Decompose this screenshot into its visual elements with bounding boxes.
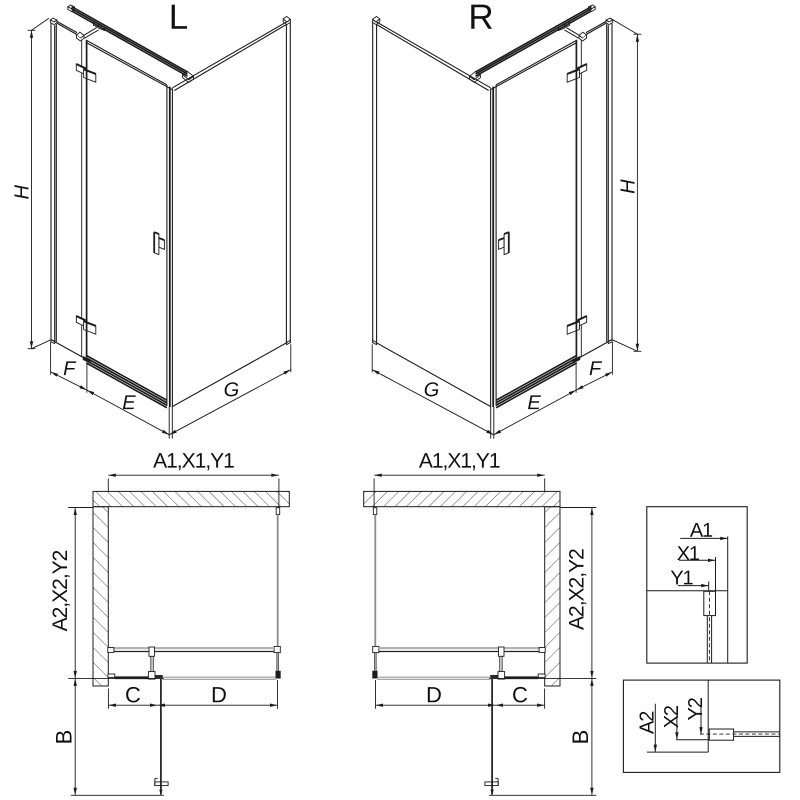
svg-text:F: F: [63, 358, 77, 380]
svg-text:H: H: [11, 185, 33, 200]
svg-text:A2,X2,Y2: A2,X2,Y2: [49, 550, 72, 631]
svg-text:Y1: Y1: [670, 567, 693, 589]
svg-text:B: B: [52, 730, 77, 745]
svg-text:D: D: [211, 682, 227, 707]
svg-text:A1,X1,Y1: A1,X1,Y1: [419, 450, 500, 473]
svg-text:X1: X1: [677, 543, 700, 565]
svg-text:R: R: [468, 0, 493, 37]
svg-text:H: H: [618, 179, 640, 194]
svg-text:D: D: [426, 682, 442, 707]
svg-text:Y2: Y2: [685, 697, 707, 720]
svg-text:X2: X2: [661, 705, 683, 728]
svg-text:E: E: [122, 392, 136, 414]
svg-text:F: F: [589, 358, 603, 380]
svg-text:B: B: [568, 730, 593, 745]
svg-text:A1: A1: [690, 520, 713, 542]
svg-text:G: G: [224, 379, 240, 401]
svg-text:A2: A2: [637, 711, 659, 734]
svg-text:A1,X1,Y1: A1,X1,Y1: [153, 450, 234, 473]
svg-text:A2,X2,Y2: A2,X2,Y2: [566, 549, 589, 630]
svg-text:L: L: [169, 0, 188, 37]
svg-text:E: E: [527, 392, 541, 414]
svg-text:G: G: [424, 379, 440, 401]
svg-text:C: C: [125, 682, 141, 707]
svg-text:C: C: [512, 682, 528, 707]
